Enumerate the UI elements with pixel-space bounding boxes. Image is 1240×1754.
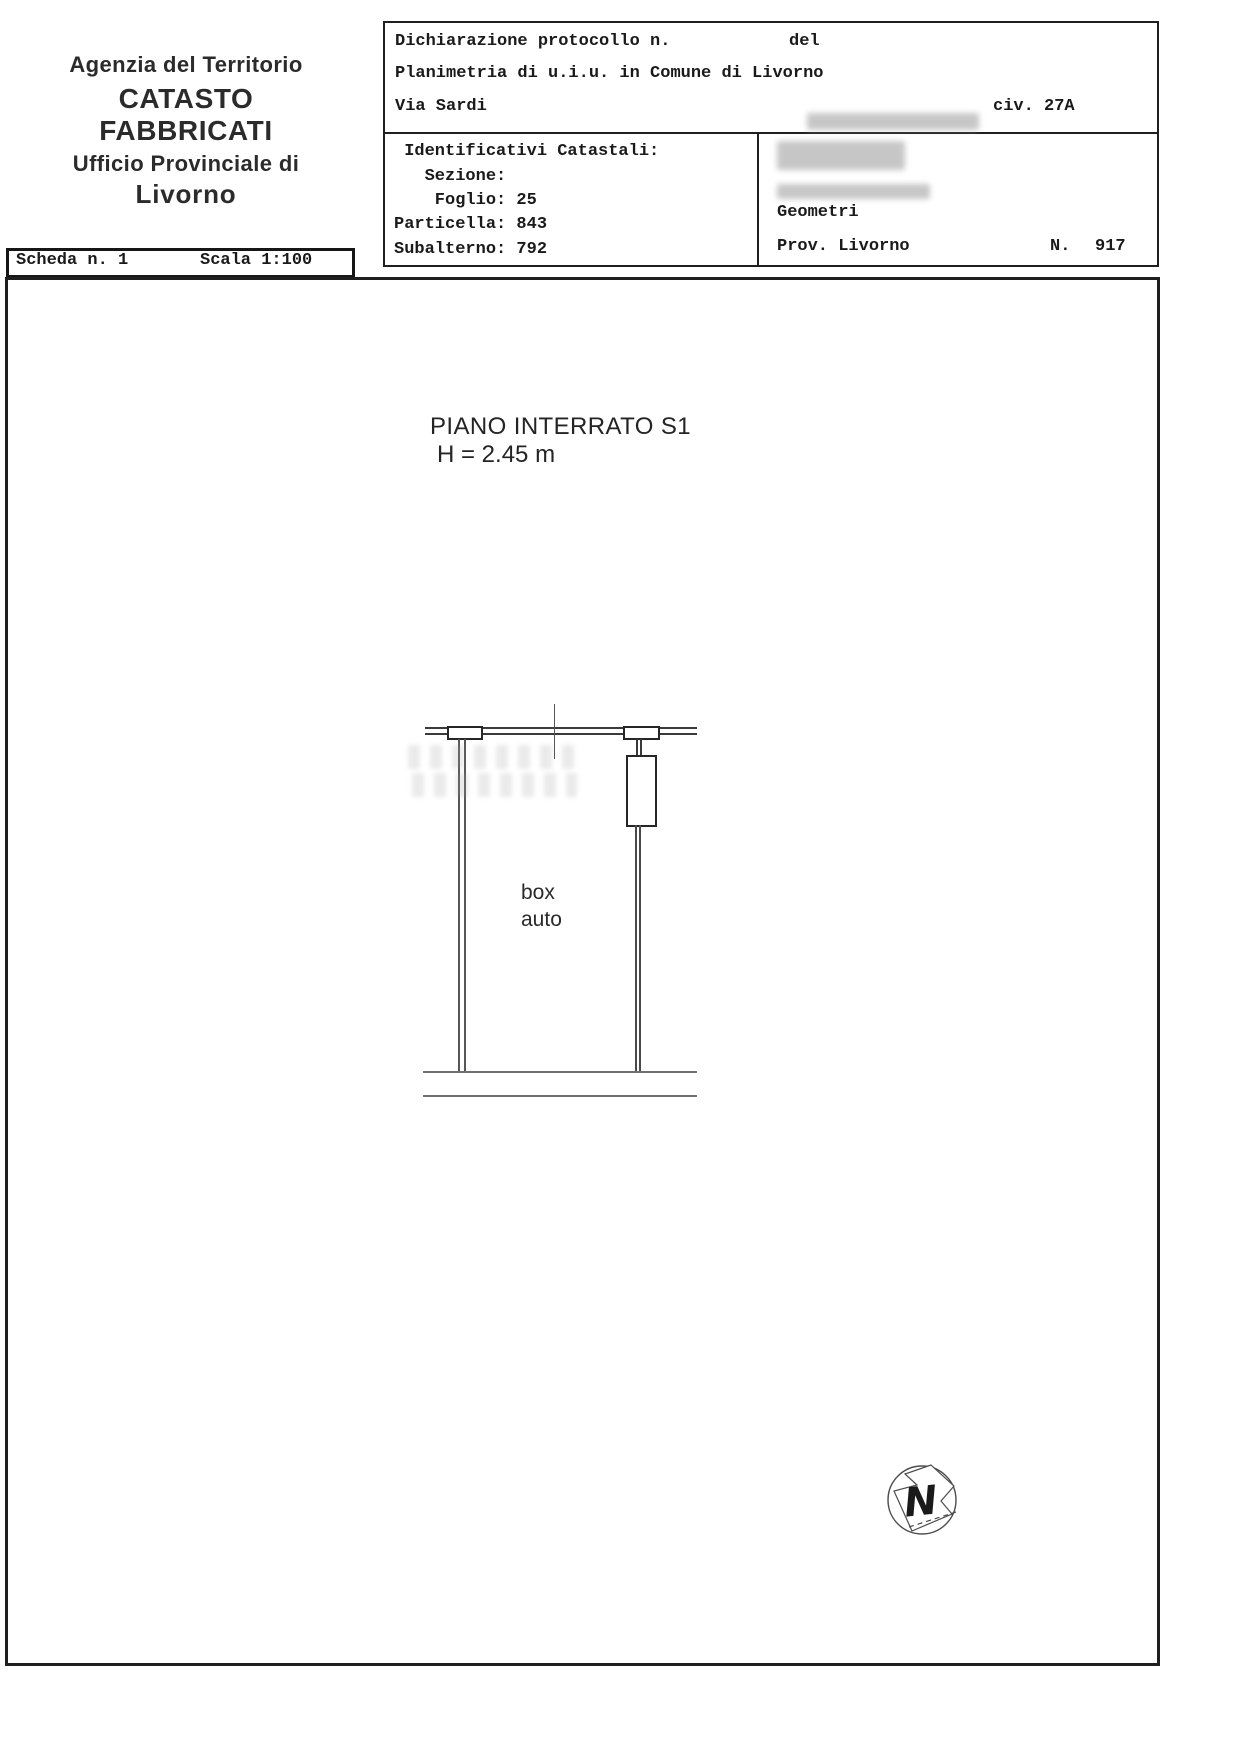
office-line: Ufficio Provinciale di [38, 151, 334, 177]
shaft-rectangle [626, 755, 657, 827]
identifier-subalterno: Subalterno: 792 [394, 240, 547, 259]
wall-right-outer [635, 825, 637, 1072]
faint-watermark-upper [408, 745, 583, 769]
identifier-sezione: Sezione: [394, 167, 506, 186]
identifier-foglio: Foglio: 25 [394, 191, 537, 210]
declaration-label: Dichiarazione protocollo n. [395, 32, 670, 51]
professional-number-value: 917 [1095, 237, 1126, 256]
professional-cell: Geometri Prov. Livorno N. 917 [759, 134, 1157, 265]
room-label: box auto [521, 879, 562, 933]
street-line: Via Sardi [395, 97, 487, 116]
pillar-left [447, 726, 483, 740]
room-label-line1: box [521, 879, 562, 906]
north-arrow-icon: N [882, 1461, 962, 1541]
catasto-title: CATASTO FABBRICATI [38, 83, 334, 147]
wall-right-inner [639, 825, 641, 1072]
scale-label: Scala 1:100 [200, 251, 312, 270]
office-city: Livorno [38, 179, 334, 210]
professional-province: Prov. Livorno [777, 237, 910, 256]
north-letter: N [902, 1478, 940, 1527]
professional-number-label: N. [1050, 237, 1070, 256]
room-label-line2: auto [521, 906, 562, 933]
drawing-frame [5, 277, 1160, 1666]
declaration-cell: Dichiarazione protocollo n. del Planimet… [385, 23, 1157, 134]
bottom-line-1 [423, 1071, 697, 1073]
faint-watermark-lower [412, 773, 577, 797]
sheet-number: Scheda n. 1 [16, 251, 128, 270]
header-table: Dichiarazione protocollo n. del Planimet… [383, 21, 1159, 267]
floor-height: H = 2.45 m [437, 441, 555, 469]
planimetria-line: Planimetria di u.i.u. in Comune di Livor… [395, 64, 823, 83]
sheet-info-bar: Scheda n. 1 Scala 1:100 [6, 248, 355, 278]
identifier-particella: Particella: 843 [394, 215, 547, 234]
civic-number: civ. 27A [993, 97, 1075, 116]
agency-letterhead: Agenzia del Territorio CATASTO FABBRICAT… [38, 52, 334, 210]
redacted-text [807, 113, 979, 130]
cadastral-identifiers-cell: Identificativi Catastali: Sezione: Fogli… [385, 134, 759, 265]
redacted-name [777, 141, 905, 170]
identifiers-title: Identificativi Catastali: [394, 142, 659, 161]
bottom-line-2 [423, 1095, 697, 1097]
declaration-del-label: del [789, 32, 820, 51]
floor-title: PIANO INTERRATO S1 [430, 413, 691, 441]
pillar-right [623, 726, 660, 740]
agency-name: Agenzia del Territorio [38, 52, 334, 78]
redacted-line [777, 184, 930, 199]
professional-role: Geometri [777, 203, 859, 222]
